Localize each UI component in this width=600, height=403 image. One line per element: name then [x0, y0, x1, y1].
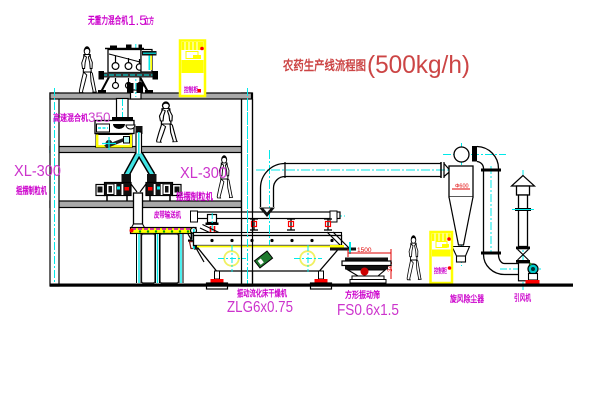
svg-text:摇摆制粒机: 摇摆制粒机 — [16, 185, 47, 197]
svg-text:无重力混合机: 无重力混合机 — [87, 14, 128, 27]
svg-text:FS0.6x1.5: FS0.6x1.5 — [337, 302, 399, 319]
svg-text:振动流化床干燥机: 振动流化床干燥机 — [237, 288, 287, 299]
svg-text:Φ600: Φ600 — [455, 184, 469, 190]
svg-text:旋风除尘器: 旋风除尘器 — [449, 293, 484, 304]
svg-text:农药生产线流程图: 农药生产线流程图 — [282, 58, 366, 73]
svg-text:摇摆制粒机: 摇摆制粒机 — [176, 191, 213, 203]
svg-text:350: 350 — [88, 110, 111, 125]
svg-text:控制柜: 控制柜 — [434, 266, 447, 275]
svg-text:皮带输送机: 皮带输送机 — [153, 210, 181, 220]
svg-text:高速混合机: 高速混合机 — [53, 112, 88, 123]
svg-text:立方: 立方 — [144, 15, 154, 26]
svg-text:引风机: 引风机 — [514, 292, 531, 303]
svg-text:ZLG6x0.75: ZLG6x0.75 — [227, 299, 293, 316]
svg-text:(500kg/h): (500kg/h) — [367, 51, 470, 79]
svg-text:XL-300: XL-300 — [180, 165, 227, 182]
svg-text:方形振动筛: 方形振动筛 — [345, 289, 380, 300]
svg-text:控制柜: 控制柜 — [184, 85, 198, 94]
svg-text:1500: 1500 — [357, 247, 372, 254]
svg-text:XL-300: XL-300 — [14, 163, 61, 180]
